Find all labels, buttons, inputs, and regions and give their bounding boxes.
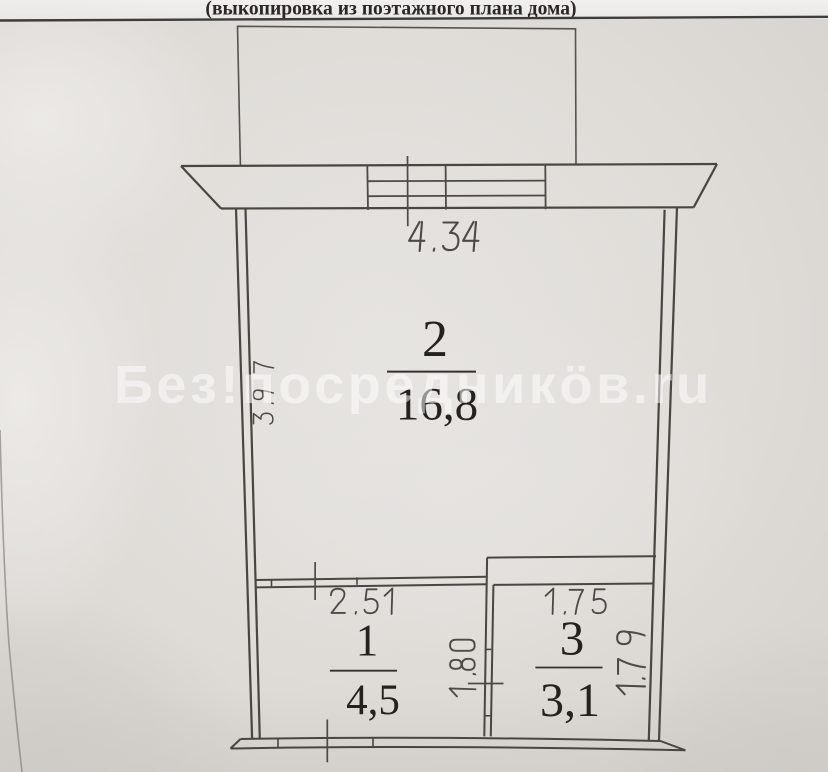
svg-text:4,5: 4,5 xyxy=(346,677,400,724)
svg-text:(выкопировка из поэтажного пла: (выкопировка из поэтажного плана дома) xyxy=(205,0,576,20)
svg-text:Без!посредникöв.ru: Без!посредникöв.ru xyxy=(114,355,713,415)
svg-text:1: 1 xyxy=(356,615,379,665)
svg-text:3: 3 xyxy=(560,610,585,665)
svg-text:3,1: 3,1 xyxy=(540,674,600,727)
